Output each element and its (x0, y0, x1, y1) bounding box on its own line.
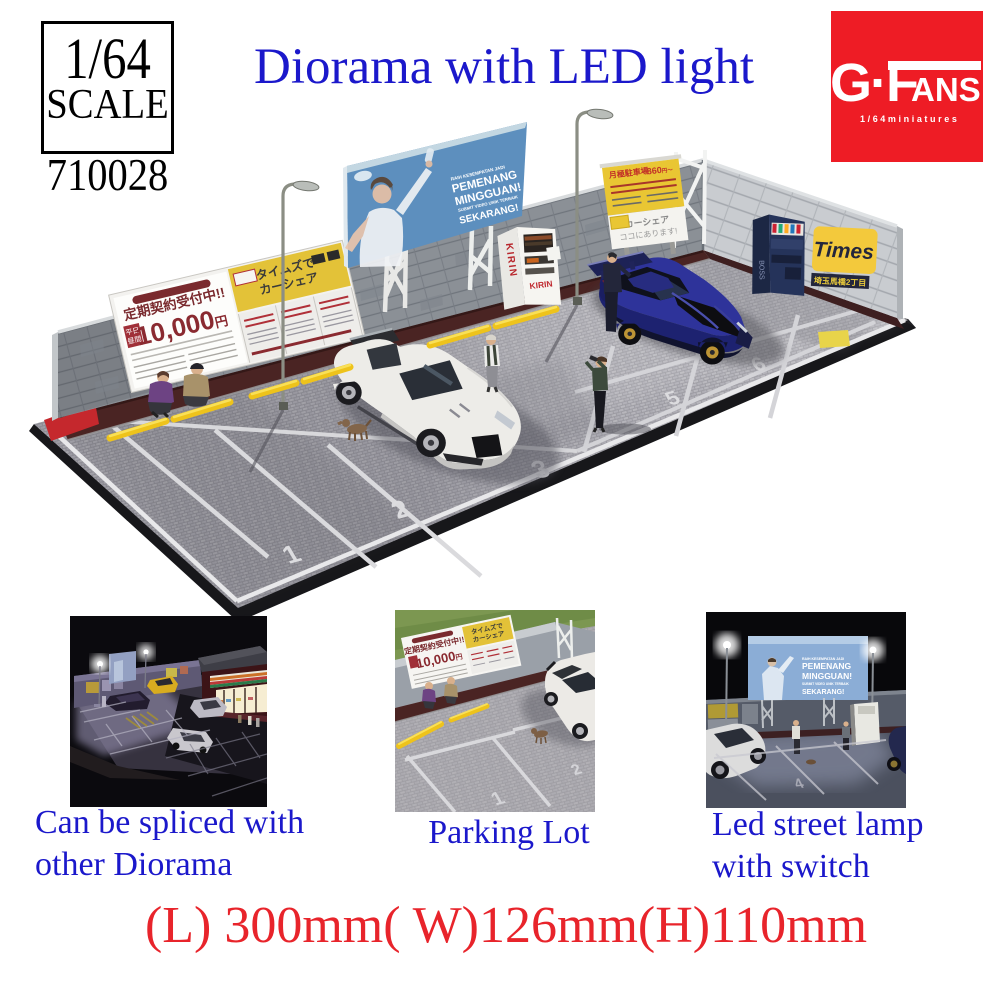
svg-text:BOSS: BOSS (757, 260, 764, 280)
svg-text:PEMENANG: PEMENANG (802, 661, 852, 671)
svg-text:SEKARANG!: SEKARANG! (802, 689, 844, 696)
svg-text:Times: Times (813, 238, 874, 264)
svg-text:MINGGUAN!: MINGGUAN! (802, 671, 852, 681)
svg-text:SUBMIT VIDEO UNIK TERBAIK: SUBMIT VIDEO UNIK TERBAIK (802, 682, 849, 686)
